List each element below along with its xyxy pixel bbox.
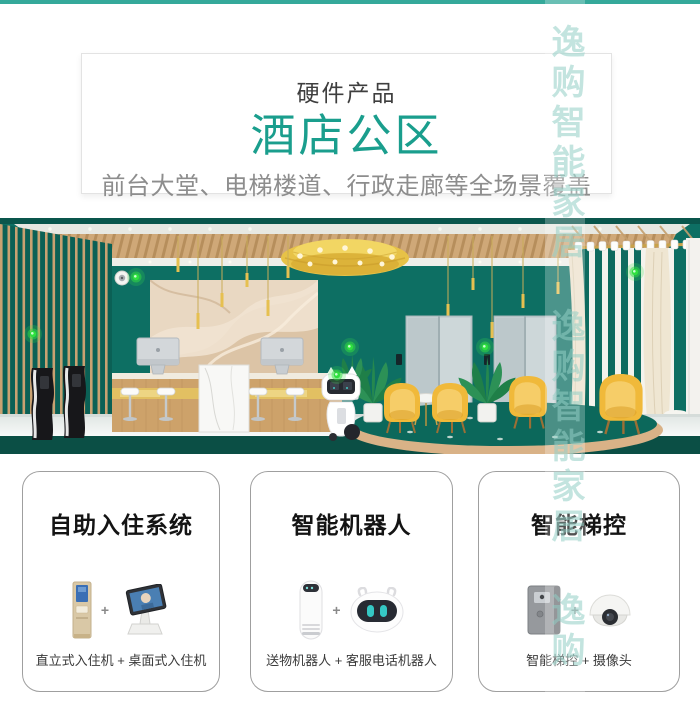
card-elevator-control: 智能梯控 + 智能梯控 + 摄像头 (478, 471, 680, 692)
desktop-checkin-machine-icon (116, 584, 172, 636)
header-card: 硬件产品 酒店公区 前台大堂、电梯楼道、行政走廊等全场景覆盖 (81, 53, 612, 194)
marble-podium (199, 365, 249, 432)
card-smart-robot: 智能机器人 + 送物机器人 + 客服电话机器人 (250, 471, 453, 692)
standing-checkin-kiosk-icon (70, 581, 94, 639)
device-images: + (524, 578, 634, 642)
plus-sign: + (101, 602, 109, 618)
elevator-control-panel-icon (524, 584, 564, 636)
plus-sign: + (571, 602, 579, 618)
section-eyebrow: 硬件产品 (82, 74, 611, 108)
wall-speaker (115, 271, 129, 285)
device-images: + (70, 578, 172, 642)
delivery-robot-icon (297, 580, 325, 640)
page-title: 酒店公区 (82, 113, 611, 158)
top-accent-bar (0, 0, 700, 4)
page-subtitle: 前台大堂、电梯楼道、行政走廊等全场景覆盖 (82, 166, 611, 201)
device-images: + (297, 578, 405, 642)
service-robot-head-icon (348, 587, 406, 633)
card-caption: 智能梯控 + 摄像头 (526, 650, 632, 669)
plus-sign: + (332, 602, 340, 618)
card-title: 智能机器人 (292, 506, 412, 540)
dome-camera-icon (586, 593, 634, 627)
card-title: 智能梯控 (531, 506, 627, 540)
hotel-lobby-image (0, 218, 700, 454)
card-caption: 直立式入住机 + 桌面式入住机 (36, 650, 207, 669)
checkin-kiosk (63, 366, 86, 438)
product-page: 硬件产品 酒店公区 前台大堂、电梯楼道、行政走廊等全场景覆盖 (0, 0, 700, 707)
card-caption: 送物机器人 + 客服电话机器人 (266, 650, 437, 669)
checkin-kiosk (31, 368, 54, 440)
wood-slat-wall (0, 224, 112, 418)
card-self-checkin: 自助入住系统 + 直立式入住机 + (22, 471, 220, 692)
card-title: 自助入住系统 (49, 506, 193, 540)
